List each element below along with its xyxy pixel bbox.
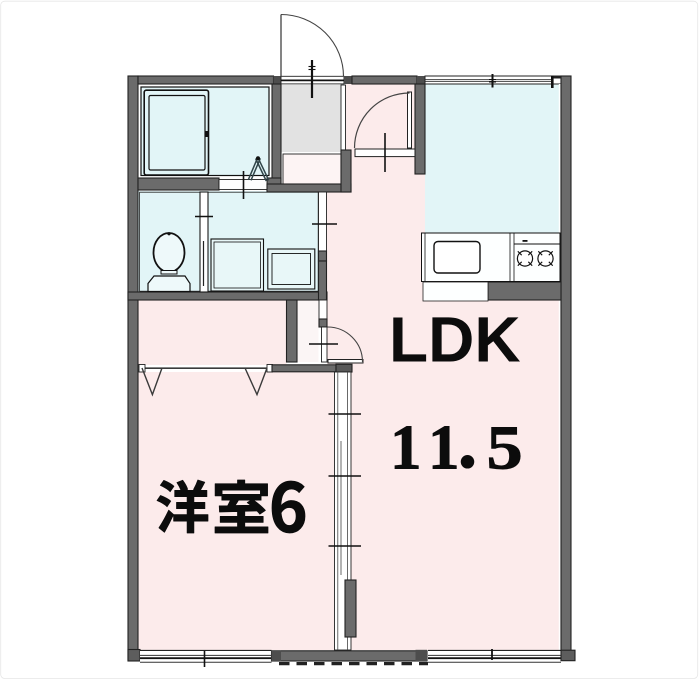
svg-text:1: 1	[428, 413, 460, 483]
svg-text:1: 1	[390, 413, 422, 483]
svg-text:LDK: LDK	[389, 304, 521, 376]
svg-text:5: 5	[487, 413, 523, 483]
